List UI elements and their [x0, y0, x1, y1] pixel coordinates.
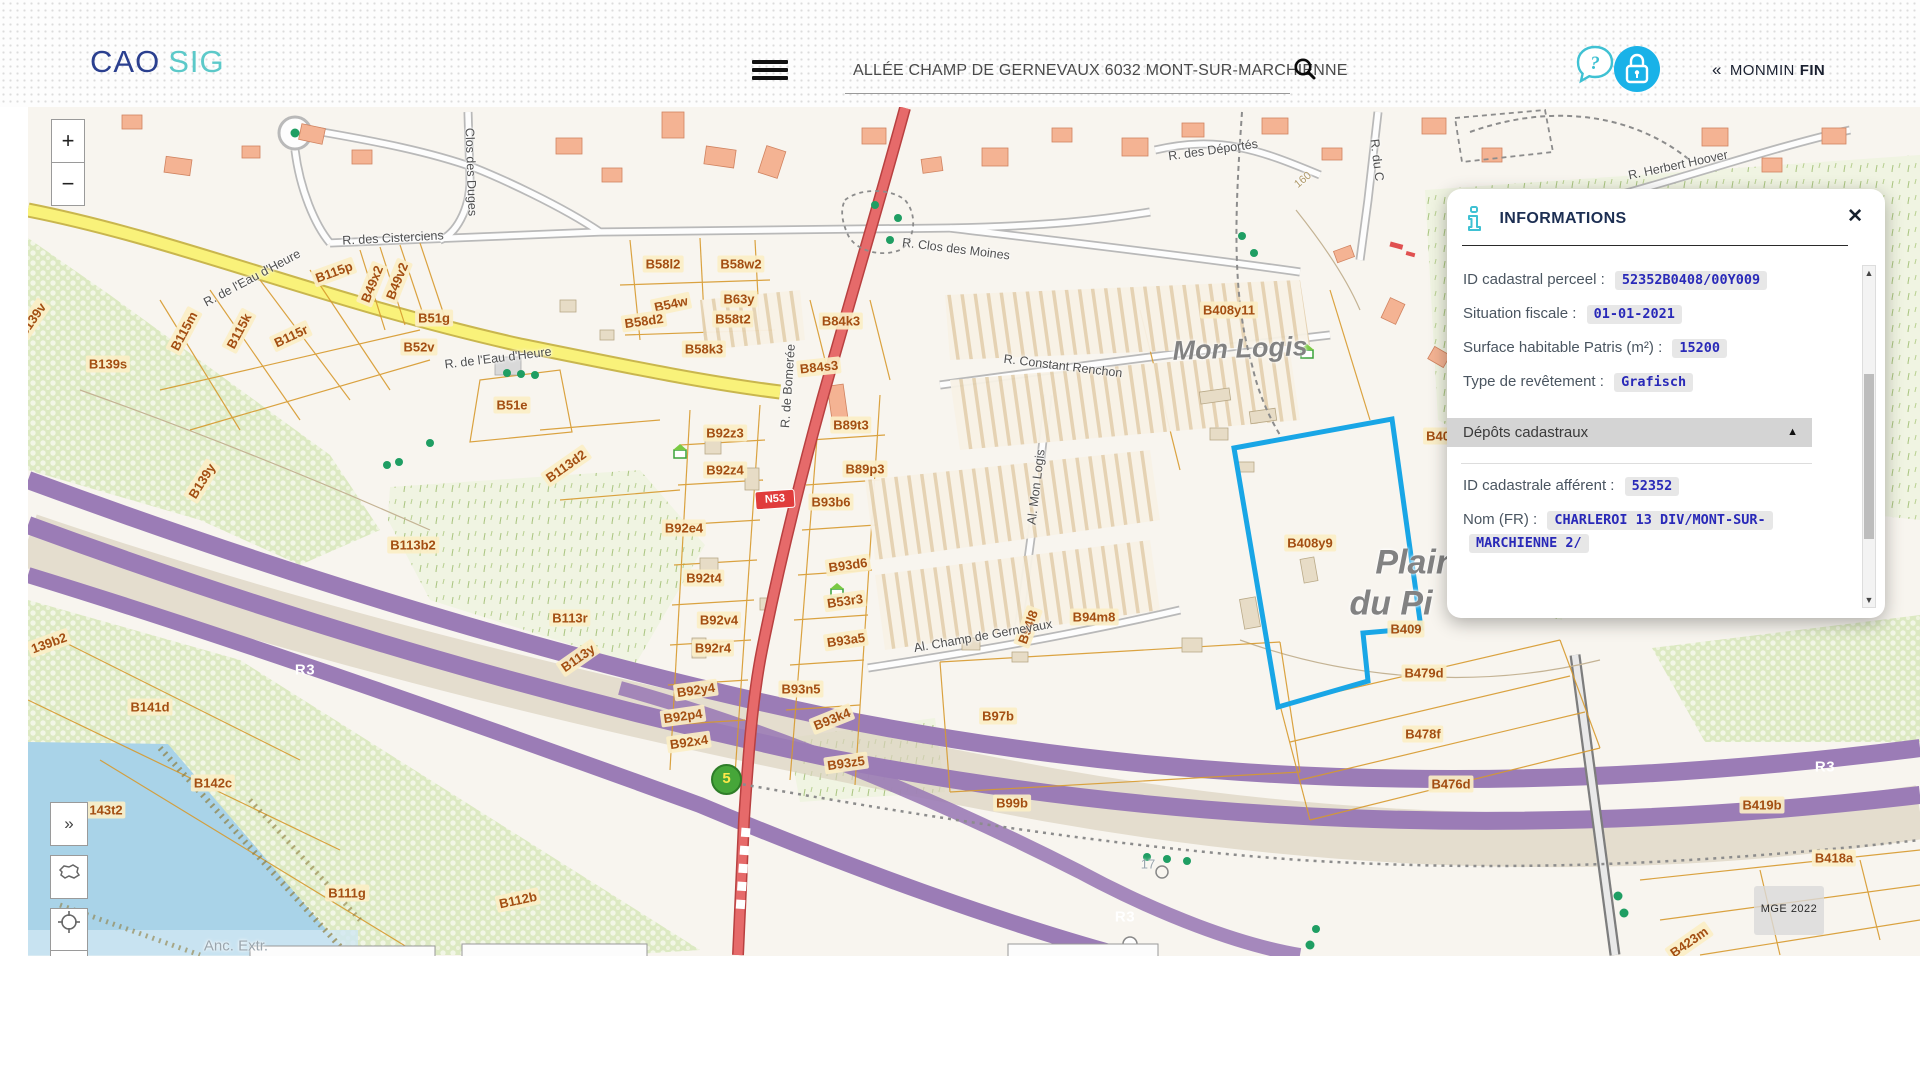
parcel-label: B112b [495, 887, 542, 913]
parcel-label: B92r4 [692, 640, 734, 657]
street-label: R. du C [1367, 138, 1386, 182]
road-badge-n53: N53 [754, 489, 795, 511]
scroll-up-icon[interactable]: ▲ [1863, 268, 1875, 278]
street-label: 160 [1292, 170, 1314, 191]
section-label: Dépôts cadastraux [1463, 424, 1588, 441]
parcel-label: B113b2 [387, 537, 439, 554]
road-shield-r3: R3 [295, 662, 315, 679]
field-value: 52352 [1625, 477, 1680, 496]
parcel-label: B141d [127, 699, 172, 716]
parcel-label: B139s [86, 356, 130, 373]
depots-cadastraux-section[interactable]: Dépôts cadastraux ▲ [1447, 418, 1812, 447]
parcel-label: B58t2 [712, 311, 753, 328]
parcel-label: B93a5 [823, 628, 869, 651]
parcel-label: B89t3 [830, 417, 871, 434]
parcel-label: B111g [325, 885, 369, 902]
watermark-badge: MGE 2022 [1754, 886, 1824, 935]
field-label: ID cadastral perceel : [1463, 271, 1609, 288]
parcel-label: B479d [1401, 665, 1446, 682]
field-label: Type de revêtement : [1463, 373, 1608, 390]
field-value: 15200 [1672, 339, 1727, 358]
field-row: Type de revêtement : Grafisch [1463, 371, 1835, 394]
logo-primary: CAO [90, 44, 160, 79]
road-shield-r3: R3 [1115, 909, 1135, 926]
parcel-label: B408y9 [1284, 535, 1336, 552]
parcel-label: B84k3 [819, 313, 863, 330]
search-icon[interactable] [1292, 56, 1318, 87]
parcel-label: B418a [1812, 850, 1856, 867]
parcel-label: B113r [549, 610, 590, 627]
parcel-label: B58l2 [643, 256, 684, 273]
parcel-label: B139y [183, 458, 221, 505]
scrollbar-thumb[interactable] [1864, 374, 1874, 539]
area-label: Anc. Extr. [204, 938, 268, 955]
road-shield-r3: R3 [1815, 759, 1835, 776]
field-label: Nom (FR) : [1463, 511, 1541, 528]
expand-panel-button[interactable]: » [50, 802, 88, 846]
street-label: R. Clos des Moines [901, 235, 1010, 262]
app-logo[interactable]: CAOSIG [90, 44, 225, 80]
field-label: Situation fiscale : [1463, 305, 1581, 322]
parcel-label: B92y4 [673, 678, 719, 701]
parcel-label: B92x4 [666, 730, 712, 753]
street-label: Clos des Duges [462, 128, 479, 217]
parcel-label: B92p4 [660, 704, 707, 727]
panel-title: INFORMATIONS [1499, 210, 1626, 228]
app-window: CAOSIG ALLÉE CHAMP DE GERNEVAUX 6032 MON… [0, 0, 1920, 1080]
svg-text:?: ? [1590, 53, 1600, 74]
field-row: Situation fiscale : 01-01-2021 [1463, 303, 1835, 326]
field-row: Surface habitable Patris (m²) : 15200 [1463, 337, 1835, 360]
field-row: Nom (FR) : CHARLEROI 13 DIV/MONT-SUR-MAR… [1463, 509, 1835, 555]
parcel-label: B92z4 [703, 462, 747, 479]
area-label: Plain [1375, 544, 1456, 583]
field-label: ID cadastrale afférent : [1463, 477, 1619, 494]
parcel-label: B423m [1664, 921, 1714, 956]
parcel-label: B93d6 [825, 553, 872, 576]
street-label: R. de l'Eau d'Heure [201, 247, 303, 310]
panel-scrollbar[interactable]: ▲ ▼ [1862, 265, 1876, 608]
parcel-label: B49v2 [381, 257, 413, 304]
parcel-label: B93z5 [823, 752, 869, 775]
collapse-arrow-icon: ▲ [1787, 426, 1798, 438]
street-label: Al. Mon Logis [1024, 449, 1047, 526]
parcel-label: B84s3 [796, 356, 842, 378]
zoom-out-button[interactable]: − [51, 162, 85, 206]
parcel-label: B113y [555, 639, 600, 678]
parcel-label: B92v4 [697, 612, 741, 629]
parcel-label: B92t4 [683, 570, 724, 587]
depot-fields: ID cadastrale afférent : 52352Nom (FR) :… [1463, 475, 1835, 555]
parcel-label: B58k3 [682, 341, 726, 358]
user-name: MONMIN [1730, 62, 1795, 79]
locate-button[interactable] [50, 908, 88, 952]
parcel-label: B115p [310, 256, 357, 287]
collapse-chevron-icon[interactable]: « [1712, 60, 1722, 79]
lock-icon[interactable] [1612, 44, 1662, 99]
panel-body: ID cadastral perceel : 52352B0408/00Y009… [1447, 246, 1885, 555]
area-label: 17 [1141, 857, 1155, 872]
search-input[interactable]: ALLÉE CHAMP DE GERNEVAUX 6032 MONT-SUR-M… [853, 62, 1348, 80]
belgium-region-icon [57, 862, 81, 882]
parcel-label: 139b2 [28, 628, 72, 659]
area-label: du Pi [1349, 585, 1432, 624]
junction-badge-5: 5 [711, 764, 742, 795]
belgium-region-button[interactable] [50, 855, 88, 899]
area-label: Mon Logis [1172, 331, 1308, 367]
parcel-label: B49x2 [356, 260, 388, 307]
field-label: Surface habitable Patris (m²) : [1463, 339, 1666, 356]
logo-accent: SIG [168, 44, 224, 79]
parcel-label: B93b6 [808, 494, 853, 511]
extra-tool-button[interactable] [50, 950, 88, 956]
parcel-label: B113d2 [540, 444, 592, 487]
cadastral-fields: ID cadastral perceel : 52352B0408/00Y009… [1463, 269, 1835, 394]
parcel-label: B139v [28, 297, 52, 343]
field-value: 01-01-2021 [1587, 305, 1682, 324]
parcel-label: B51g [415, 310, 453, 327]
street-label: R. des Cisterciens [342, 228, 444, 247]
street-label: R. de l'Eau d'Heure [444, 344, 553, 371]
parcel-label: B51e [493, 397, 530, 414]
app-header: CAOSIG ALLÉE CHAMP DE GERNEVAUX 6032 MON… [0, 0, 1920, 107]
parcel-label: B99b [993, 795, 1031, 812]
search-underline [845, 93, 1290, 94]
field-value: Grafisch [1614, 373, 1693, 392]
user-role: FIN [1800, 62, 1825, 79]
street-label: R. Herbert Hoover [1627, 148, 1729, 183]
panel-header: INFORMATIONS ✕ [1447, 189, 1885, 243]
close-icon[interactable]: ✕ [1847, 205, 1863, 228]
parcel-label: B52v [400, 339, 437, 356]
parcel-label: B58w2 [717, 256, 764, 273]
user-session[interactable]: «MONMINFIN [1712, 60, 1825, 80]
parcel-label: B53r3 [823, 590, 867, 613]
field-row: ID cadastrale afférent : 52352 [1463, 475, 1835, 498]
parcel-label: B478f [1402, 726, 1443, 743]
parcel-label: B419b [1739, 797, 1784, 814]
locate-icon [56, 909, 82, 935]
parcel-label: B63y [720, 291, 757, 308]
parcel-label: B476d [1428, 776, 1473, 793]
zoom-in-button[interactable]: + [51, 119, 85, 163]
parcel-label: B92e4 [662, 520, 706, 537]
parcel-label: B408y11 [1200, 302, 1258, 319]
field-row: ID cadastral perceel : 52352B0408/00Y009 [1463, 269, 1835, 292]
scroll-down-icon[interactable]: ▼ [1863, 595, 1875, 605]
parcel-label: B93k4 [808, 703, 855, 735]
parcel-label: B115k [221, 308, 256, 354]
street-label: R. Constant Renchon [1003, 352, 1123, 380]
field-value: 52352B0408/00Y009 [1615, 271, 1767, 290]
street-label: R. de Bomerée [778, 344, 798, 429]
parcel-label: B142c [191, 775, 235, 792]
parcel-label: 143t2 [86, 802, 125, 819]
parcel-label: B58d2 [621, 309, 668, 332]
parcel-label: B92z3 [703, 425, 747, 442]
parcel-label: B89p3 [842, 461, 887, 478]
info-icon [1463, 205, 1485, 233]
parcel-label: B115m [165, 306, 203, 356]
parcel-label: B97b [979, 708, 1017, 725]
street-label: R. des Déportés [1167, 137, 1258, 163]
parcel-label: B115r [269, 320, 314, 353]
informations-panel: INFORMATIONS ✕ ID cadastral perceel : 52… [1447, 189, 1885, 618]
parcel-label: B94m8 [1070, 609, 1119, 626]
menu-icon[interactable] [752, 60, 788, 84]
parcel-label: B93n5 [778, 681, 823, 698]
